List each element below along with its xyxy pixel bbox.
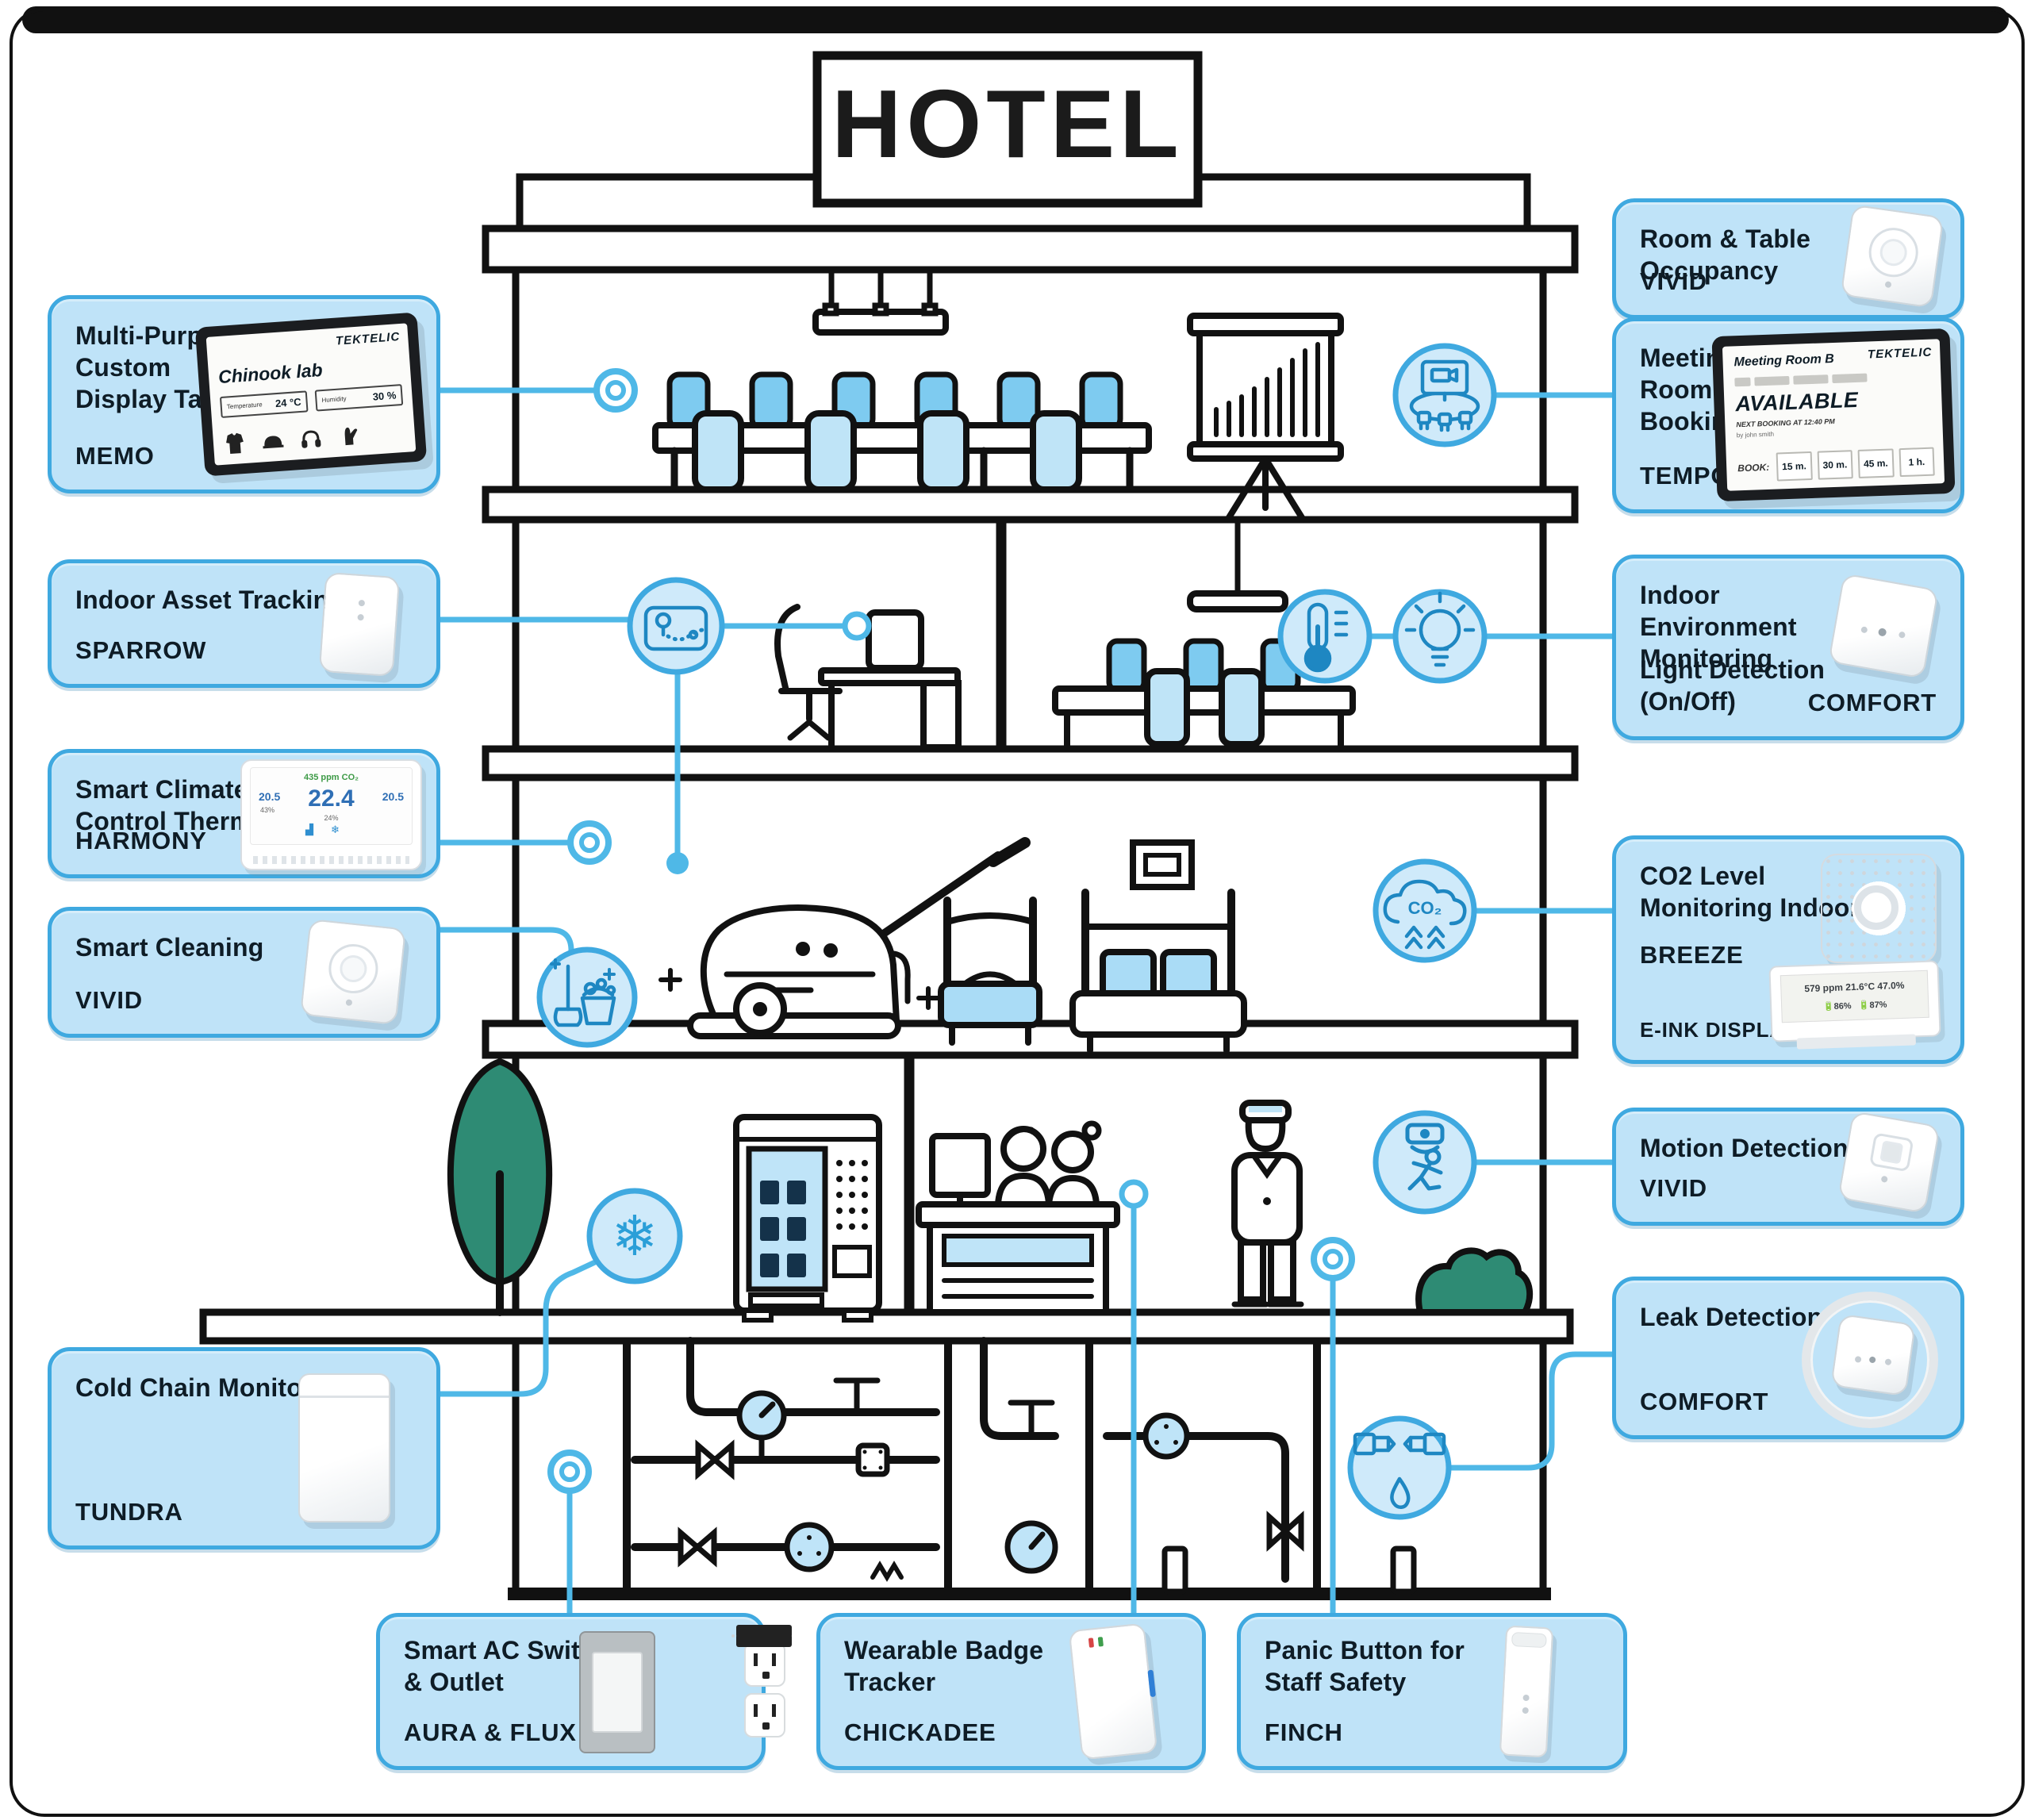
callout-tundra[interactable]: Cold Chain Monitoring TUNDRA <box>48 1347 440 1549</box>
callout-harmony[interactable]: Smart Climate Control Thermostat HARMONY… <box>48 749 440 878</box>
callout-motion-product: VIVID <box>1640 1174 1707 1203</box>
callout-memo-product: MEMO <box>75 442 155 470</box>
memo-temperature-field: Temperature 24 °C <box>220 390 309 418</box>
callout-tundra-product: TUNDRA <box>75 1498 183 1526</box>
gloves-icon <box>336 424 362 449</box>
single-bed <box>941 900 1039 1042</box>
finch-panic-device <box>1499 1626 1554 1758</box>
ceiling-lamp <box>816 273 946 332</box>
callout-sparrow-title: Indoor Asset Tracking <box>75 584 344 616</box>
badge-node-dot <box>1122 1182 1146 1206</box>
callout-chickadee-product: CHICKADEE <box>844 1718 996 1747</box>
memo-tablet: TEKTELIC Chinook lab Temperature 24 °C H… <box>195 312 427 476</box>
asset-tracking-icon[interactable] <box>630 580 722 672</box>
callout-tempo[interactable]: Meeting Room Booking TEMPO Meeting Room … <box>1612 317 1964 513</box>
reception-monitor <box>932 1136 988 1195</box>
callout-breeze[interactable]: CO2 Level Monitoring Indoor BREEZE E-INK… <box>1612 835 1964 1064</box>
tempo-book-15m-button[interactable]: 15 m. <box>1776 451 1813 482</box>
concierge <box>1234 1103 1301 1304</box>
thermometer-icon[interactable] <box>1280 592 1369 681</box>
breeze-eink-display: 579 ppm 21.6°C 47.0% 🔋86% 🔋87% <box>1768 960 1941 1042</box>
tempo-status: AVAILABLE <box>1735 388 1859 417</box>
callout-occupancy[interactable]: Room & Table Occupancy VIVID <box>1612 198 1964 319</box>
callout-occupancy-product: VIVID <box>1640 267 1707 296</box>
panic-ring <box>1314 1240 1352 1278</box>
hard-hat-icon <box>260 428 286 454</box>
tempo-book-30m-button[interactable]: 30 m. <box>1817 450 1853 480</box>
callout-comfort-env[interactable]: Indoor Environment Monitoring Light Dete… <box>1612 555 1964 740</box>
snowflake-glyph: ❄ <box>612 1205 658 1267</box>
ground-floor <box>451 1062 1530 1320</box>
callout-motion-title: Motion Detection <box>1640 1132 1849 1164</box>
callout-finch-product: FINCH <box>1265 1718 1343 1747</box>
co2-icon-label: CO₂ <box>1408 898 1442 918</box>
tektelic-logo: TEKTELIC <box>1868 346 1933 362</box>
eink-battery-readings: 🔋86% 🔋87% <box>1782 998 1928 1013</box>
callout-comfort-env-product: COMFORT <box>1808 689 1937 717</box>
callout-memo[interactable]: Multi-Purpose Custom Display Tablet MEMO… <box>48 295 440 493</box>
comfort-sensor-device <box>1828 573 1939 678</box>
tektelic-logo: TEKTELIC <box>335 330 400 348</box>
roof-band-eave <box>486 228 1575 270</box>
aura-ring <box>551 1453 589 1491</box>
memo-room-label: Chinook lab <box>217 359 323 388</box>
safety-vest-icon <box>222 432 248 457</box>
tempo-tablet: Meeting Room B TEKTELIC AVAILABLE NEXT B… <box>1711 328 1955 501</box>
vending-machine <box>736 1117 879 1320</box>
callout-finch-title: Panic Button for Staff Safety <box>1265 1634 1465 1698</box>
memo-humidity-field: Humidity 30 % <box>315 384 404 412</box>
tundra-device <box>298 1373 390 1522</box>
lightbulb-icon[interactable] <box>1396 592 1484 681</box>
reception-desk <box>919 1123 1117 1312</box>
aura-switch-device <box>579 1631 655 1753</box>
tempo-room-label: Meeting Room B <box>1733 352 1834 370</box>
tempo-amenity-tags <box>1734 373 1867 386</box>
leak-sensor-device <box>1830 1314 1916 1396</box>
harmony-ring <box>570 824 609 862</box>
chickadee-badge-device <box>1069 1622 1158 1760</box>
callout-cleaning-title: Smart Cleaning <box>75 931 264 963</box>
tempo-book-45m-button[interactable]: 45 m. <box>1858 448 1895 478</box>
ground-ledge <box>203 1312 1570 1341</box>
leak-connector <box>1447 1354 1612 1468</box>
cleaning-icon[interactable] <box>539 950 635 1045</box>
receptionist-2 <box>1054 1134 1091 1170</box>
callout-breeze-product: BREEZE <box>1640 941 1744 970</box>
co2-icon[interactable]: CO₂ <box>1376 862 1474 960</box>
callout-leak-title: Leak Detection <box>1640 1301 1822 1333</box>
harmony-mode-icons: ▟❄ <box>251 824 412 836</box>
harmony-thermostat: 435 ppm CO₂ 20.5 22.4 20.5 43% 24% ▟❄ <box>240 759 422 870</box>
ear-protection-icon <box>298 426 324 451</box>
hotel-iot-diagram: CO₂ ❄ <box>0 0 2031 1820</box>
callout-chickadee-title: Wearable Badge Tracker <box>844 1634 1043 1698</box>
callout-leak-product: COMFORT <box>1640 1388 1768 1416</box>
memo-ring <box>597 371 635 409</box>
callout-sparrow-product: SPARROW <box>75 636 206 665</box>
basement-utilities <box>635 1341 1414 1592</box>
callout-cleaning[interactable]: Smart Cleaning VIVID <box>48 907 440 1038</box>
callout-sparrow[interactable]: Indoor Asset Tracking SPARROW <box>48 559 440 688</box>
callout-cleaning-product: VIVID <box>75 986 143 1015</box>
slab-1 <box>486 490 1575 520</box>
motion-icon[interactable] <box>1376 1113 1474 1211</box>
tempo-booked-by: by john smith <box>1737 431 1774 440</box>
leak-icon[interactable] <box>1350 1419 1449 1517</box>
desk-node-dot <box>845 614 869 638</box>
bush <box>1419 1250 1530 1312</box>
occupancy-sensor-device <box>1840 204 1944 308</box>
callout-aura[interactable]: Smart AC Switch & Outlet AURA & FLUX <box>376 1613 766 1770</box>
harmony-co2-reading: 435 ppm CO₂ <box>251 773 412 782</box>
tempo-book-1h-button[interactable]: 1 h. <box>1899 447 1935 478</box>
memo-ppe-icons <box>222 424 362 457</box>
callout-aura-product: AURA & FLUX <box>404 1718 577 1747</box>
meeting-room-icon[interactable] <box>1396 346 1494 444</box>
callout-leak[interactable]: Leak Detection COMFORT <box>1612 1277 1964 1439</box>
double-bed <box>1073 893 1244 1050</box>
callout-motion[interactable]: Motion Detection VIVID <box>1612 1108 1964 1226</box>
flux-outlet-device <box>731 1634 735 1638</box>
cleaning-sensor-device <box>300 919 406 1025</box>
sparrow-device <box>319 572 401 677</box>
floor-rooms <box>661 843 1244 1050</box>
hotel-sign-label: HOTEL <box>817 68 1198 179</box>
wall-picture-frame <box>1133 843 1192 887</box>
eink-readings: 579 ppm 21.6°C 47.0% <box>1781 979 1927 995</box>
harmony-main-sub: 24% <box>251 814 412 822</box>
callout-finch[interactable]: Panic Button for Staff Safety FINCH <box>1237 1613 1627 1770</box>
cleaning-connector <box>432 930 571 954</box>
callout-harmony-product: HARMONY <box>75 827 207 855</box>
tempo-book-label: BOOK: <box>1737 462 1769 474</box>
callout-chickadee[interactable]: Wearable Badge Tracker CHICKADEE <box>816 1613 1206 1770</box>
callout-comfort-env-subtitle: Light Detection (On/Off) <box>1640 654 1825 717</box>
tempo-next-booking: NEXT BOOKING AT 12:40 PM <box>1736 417 1835 428</box>
harmony-set-temp: 20.5 <box>382 790 404 803</box>
snowflake-icon[interactable]: ❄ <box>589 1191 680 1281</box>
motion-sensor-device <box>1837 1111 1941 1214</box>
slab-2 <box>486 749 1575 778</box>
floor-meeting-room <box>655 273 1341 519</box>
asset-end-dot <box>666 852 689 874</box>
harmony-left-sub: 43% <box>260 806 275 814</box>
